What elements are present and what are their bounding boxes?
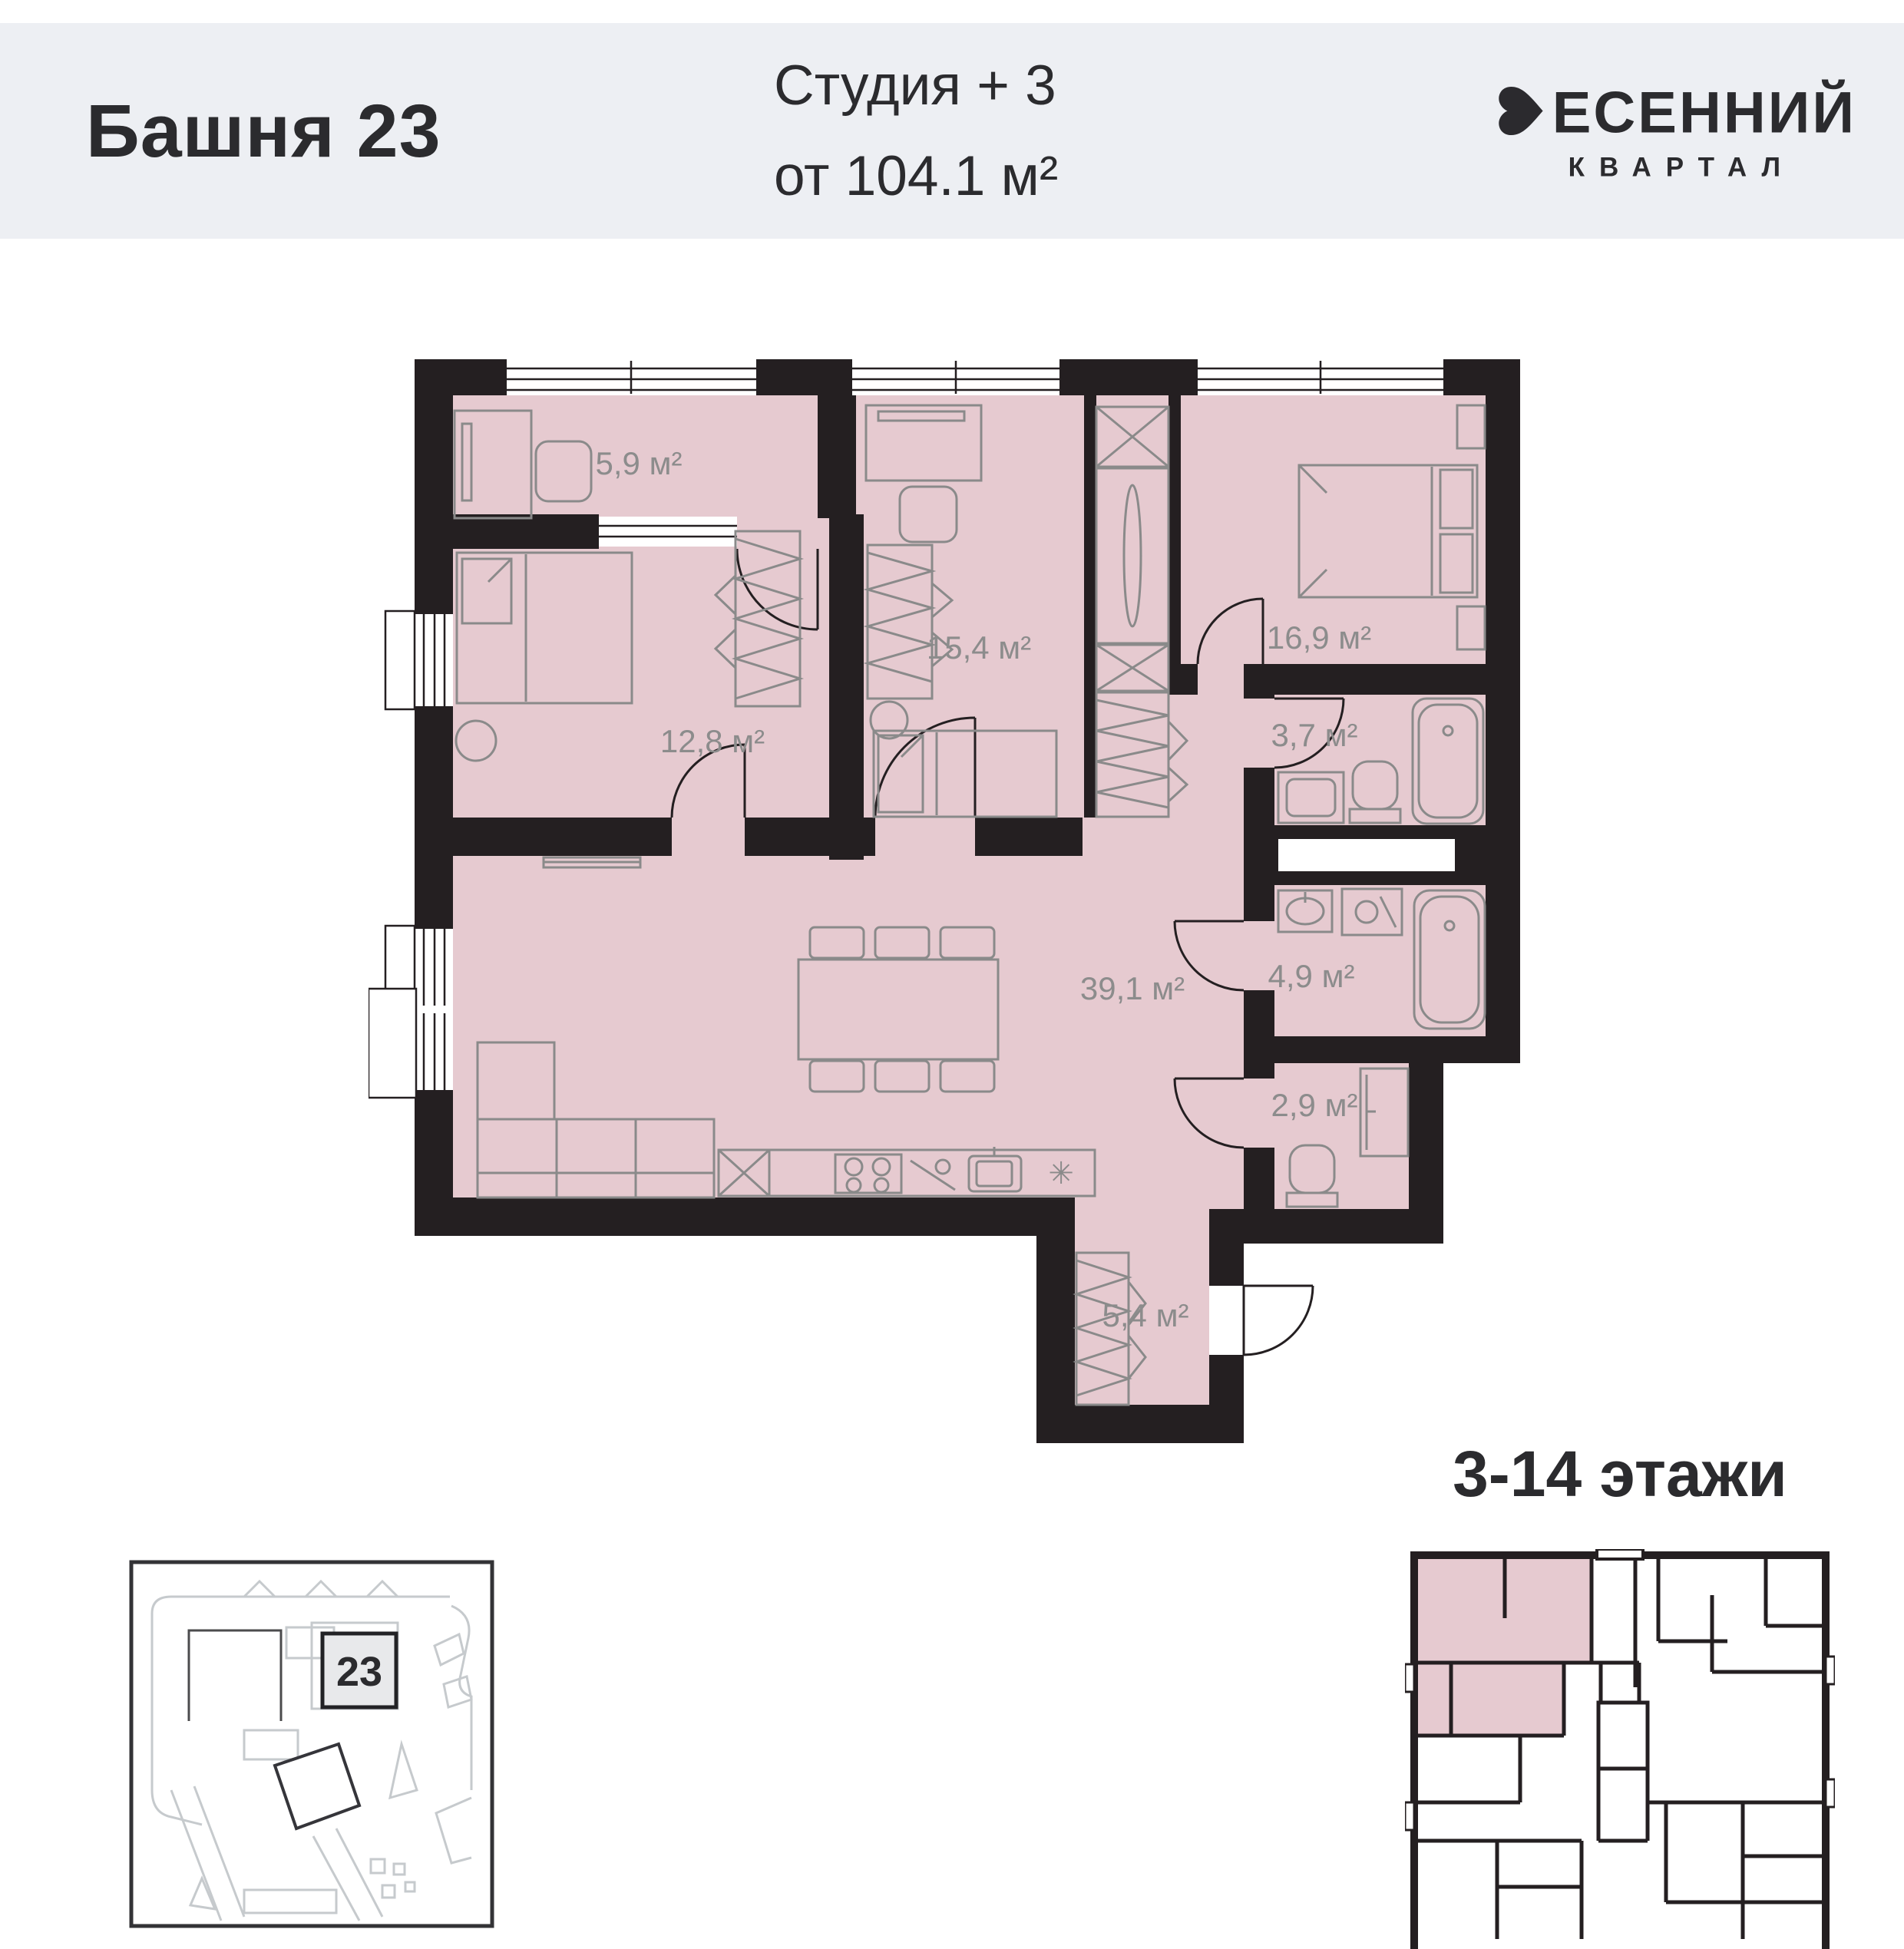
room-label-bedroom-middle: 15,4 м² — [927, 629, 1031, 666]
room-label-hallway: 5,4 м² — [1102, 1297, 1189, 1333]
room-label-wc: 2,9 м² — [1271, 1087, 1358, 1123]
unit-area: от 104.1 м² — [774, 131, 1058, 222]
fridge-icon: ✳ — [1048, 1156, 1074, 1191]
building-23-badge: 23 — [322, 1634, 396, 1707]
brand-logo: ЕСЕННИЙ КВАРТАЛ — [1492, 79, 1856, 183]
floor-plate-diagram — [1405, 1549, 1835, 1949]
room-label-shower-room: 3,7 м² — [1271, 717, 1358, 753]
tower-title: Башня 23 — [86, 88, 441, 174]
window-top-1 — [507, 359, 756, 395]
entrance-door — [1244, 1286, 1313, 1355]
site-plan-svg: 23 — [129, 1560, 494, 1928]
floors-label: 3-14 этажи — [1374, 1437, 1866, 1511]
heart-letter-v-icon — [1492, 85, 1549, 140]
window-top-2 — [852, 359, 1059, 395]
window-left-bedroom — [385, 611, 453, 709]
brand-name: ЕСЕННИЙ — [1552, 79, 1856, 146]
site-plan-map: 23 — [129, 1560, 494, 1928]
room-label-cabinet: 5,9 м² — [596, 445, 683, 481]
unit-type: Студия + 3 — [774, 40, 1058, 130]
french-balcony — [369, 989, 416, 1098]
site-plan-frame — [131, 1562, 492, 1926]
room-label-bedroom-right: 16,9 м² — [1267, 619, 1371, 656]
unit-floor — [453, 395, 1486, 1405]
flyer-page: Башня 23 Студия + 3 от 104.1 м² ЕСЕННИЙ … — [0, 0, 1904, 1949]
unit-summary: Студия + 3 от 104.1 м² — [774, 40, 1058, 222]
duct-niche — [1278, 839, 1455, 871]
floor-plate-svg — [1405, 1549, 1835, 1949]
header-band: Башня 23 Студия + 3 от 104.1 м² ЕСЕННИЙ … — [0, 23, 1904, 239]
brand-subtitle: КВАРТАЛ — [1492, 152, 1856, 183]
room-label-bedroom-left: 12,8 м² — [660, 723, 765, 759]
floor-plan-svg: ✳ 5,9 м² 15,4 м² 16,9 м² 12,8 м² 3,7 м² … — [369, 322, 1597, 1551]
window-top-3 — [1198, 359, 1443, 395]
room-label-bathroom: 4,9 м² — [1268, 958, 1355, 994]
room-label-living-kitchen: 39,1 м² — [1080, 970, 1185, 1006]
building-number: 23 — [336, 1649, 382, 1695]
transom-window — [599, 517, 737, 547]
floor-plan: ✳ 5,9 м² 15,4 м² 16,9 м² 12,8 м² 3,7 м² … — [369, 322, 1597, 1551]
floor-fill-layer — [453, 395, 1486, 1405]
